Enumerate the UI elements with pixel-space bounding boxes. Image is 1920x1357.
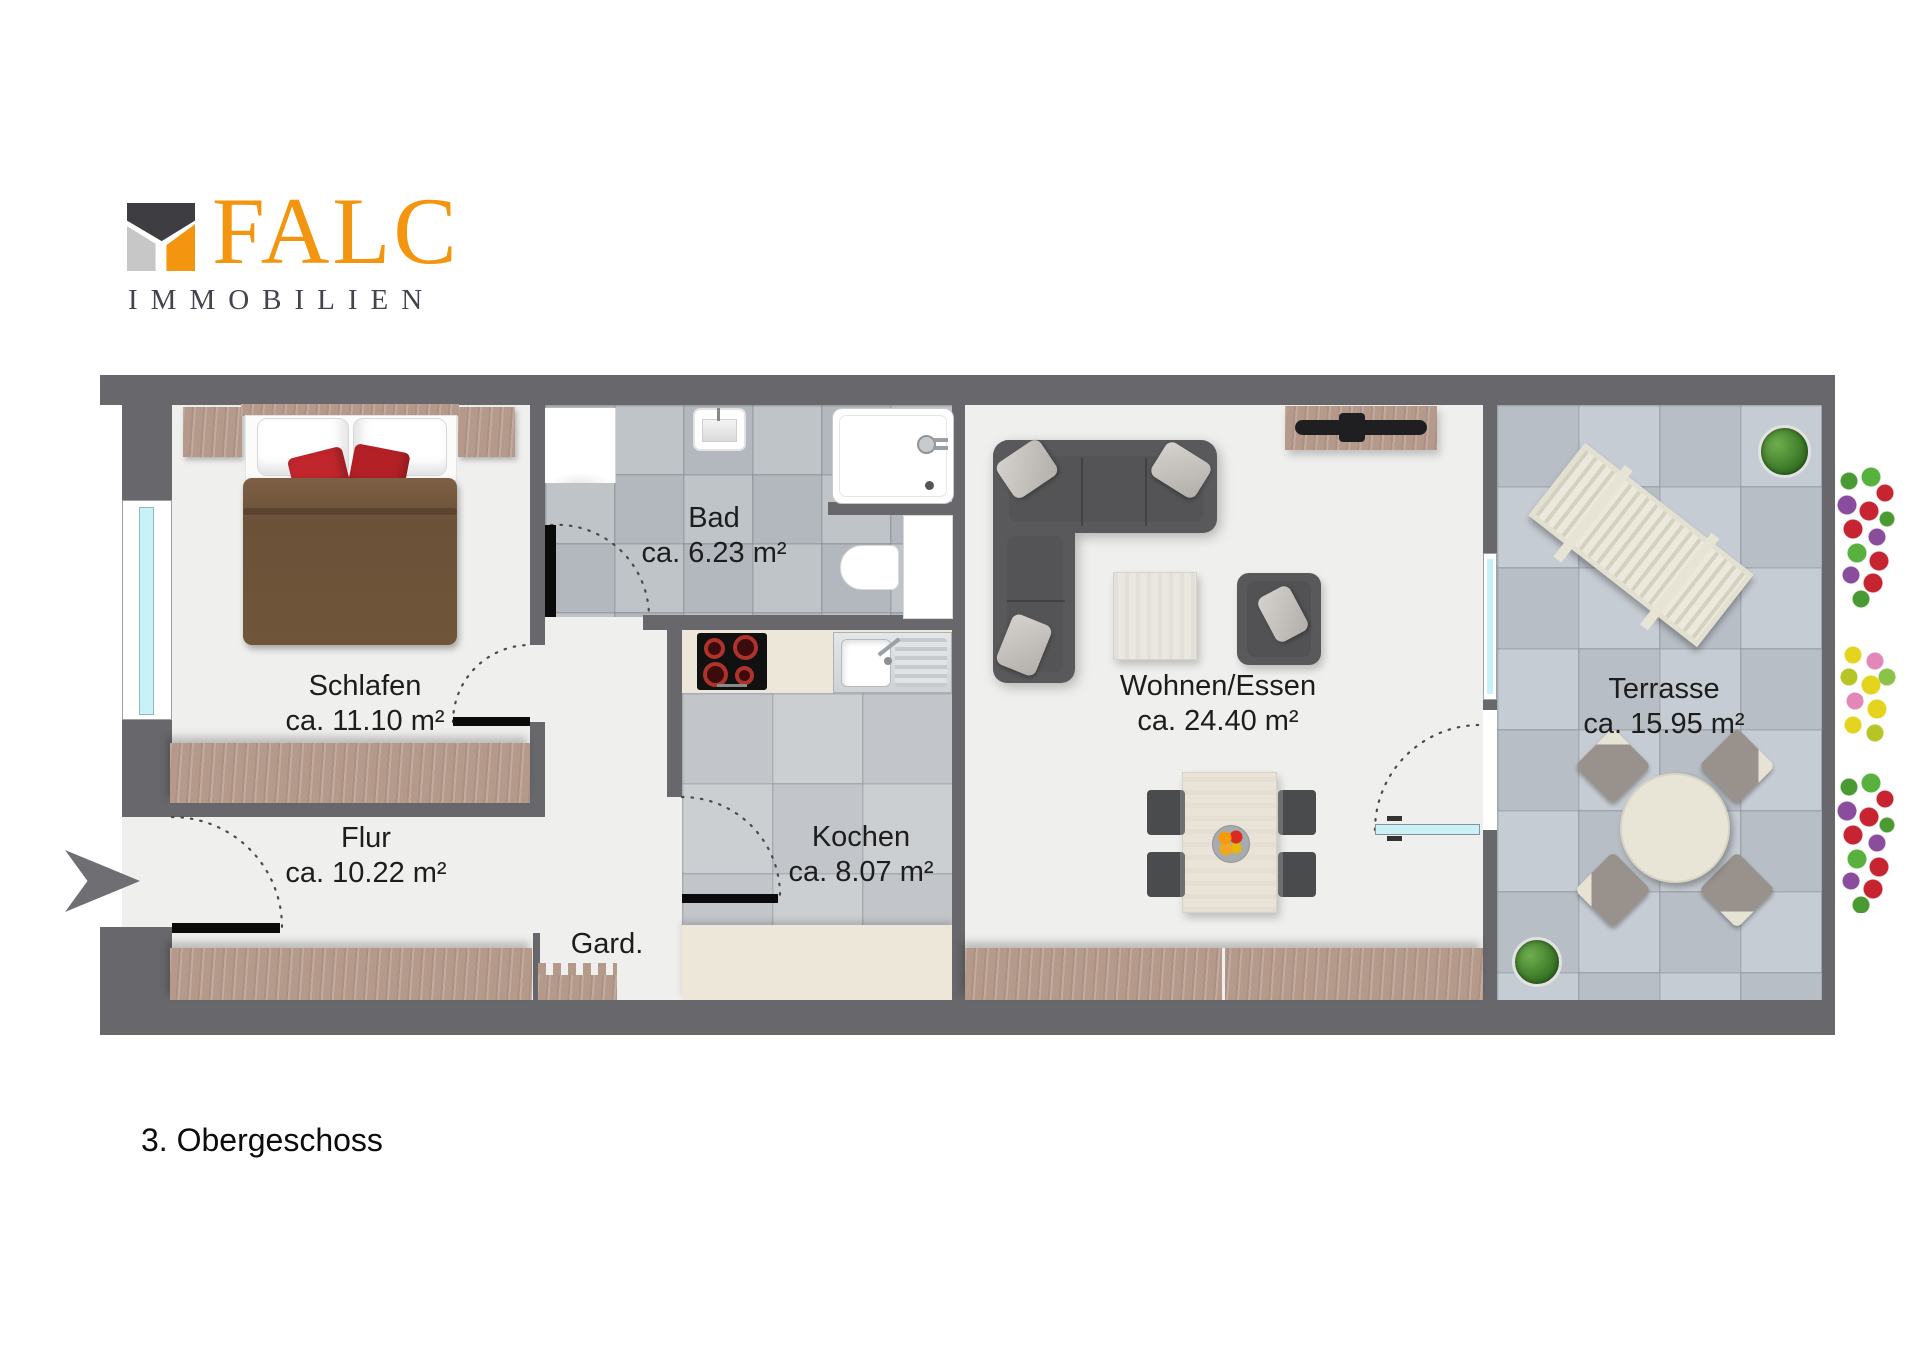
cooktop bbox=[697, 633, 767, 690]
door-kochen bbox=[682, 894, 778, 903]
bed-duvet bbox=[243, 478, 457, 645]
nightstand bbox=[458, 407, 515, 457]
logo-subtitle-text: IMMOBILIEN bbox=[128, 284, 435, 317]
burner-icon bbox=[704, 638, 725, 659]
room-name: Terrasse bbox=[1583, 672, 1744, 707]
dining-chair bbox=[1278, 852, 1316, 897]
room-area: ca. 6.23 m² bbox=[641, 536, 786, 571]
bath-shelf bbox=[903, 515, 953, 619]
shower-pipe bbox=[933, 446, 948, 450]
terrace-table bbox=[1620, 773, 1730, 883]
door-terrasse-glass bbox=[1375, 824, 1480, 835]
door-bad bbox=[545, 525, 556, 617]
room-name: Kochen bbox=[788, 820, 933, 855]
room-label-kochen: Kochen ca. 8.07 m² bbox=[788, 820, 933, 890]
room-name: Flur bbox=[285, 821, 446, 856]
washing-machine bbox=[545, 408, 616, 483]
flower-box bbox=[1833, 773, 1905, 913]
basin bbox=[702, 419, 737, 442]
flower-box bbox=[1833, 467, 1905, 612]
dining-chair bbox=[1278, 790, 1316, 835]
burner-icon bbox=[733, 635, 758, 660]
door-handle bbox=[1387, 836, 1402, 841]
flower-box bbox=[1835, 643, 1903, 748]
coat-rack bbox=[538, 963, 617, 1000]
shower bbox=[832, 408, 954, 504]
door-handle bbox=[1387, 816, 1402, 821]
drain-icon bbox=[925, 481, 934, 490]
armchair bbox=[1237, 573, 1321, 665]
cooktop-controls bbox=[717, 684, 747, 687]
sideboard-wohnen bbox=[965, 948, 1483, 1000]
room-label-terrasse: Terrasse ca. 15.95 m² bbox=[1583, 672, 1744, 742]
sink-basin bbox=[841, 639, 891, 687]
room-area: ca. 8.07 m² bbox=[788, 855, 933, 890]
dining-chair bbox=[1147, 852, 1185, 897]
seat-divider bbox=[1145, 458, 1147, 526]
shower-pipe bbox=[933, 438, 948, 442]
wardrobe-flur bbox=[170, 948, 532, 1000]
faucet-icon bbox=[717, 408, 720, 421]
double-bed bbox=[241, 404, 459, 645]
room-area: ca. 11.10 m² bbox=[285, 704, 444, 739]
falc-logo-mark-icon bbox=[127, 203, 195, 271]
sideboard-divider bbox=[1222, 948, 1225, 1000]
room-name: Gard. bbox=[571, 927, 644, 962]
fruit-bowl bbox=[1212, 825, 1250, 863]
burner-icon bbox=[735, 666, 754, 685]
nightstand bbox=[183, 407, 242, 457]
room-label-schlafen: Schlafen ca. 11.10 m² bbox=[285, 669, 444, 739]
duvet-fold bbox=[243, 508, 457, 515]
lounger-bar bbox=[1553, 465, 1632, 563]
room-area: ca. 15.95 m² bbox=[1583, 707, 1744, 742]
kitchen-sink bbox=[833, 632, 952, 693]
room-name: Bad bbox=[641, 501, 786, 536]
coffee-table bbox=[1113, 572, 1197, 660]
coat-rack-board bbox=[538, 975, 617, 1000]
lounger-bar bbox=[1640, 533, 1719, 631]
room-label-gard: Gard. bbox=[571, 927, 644, 962]
floor-plan: Schlafen ca. 11.10 m² Bad ca. 6.23 m² Fl… bbox=[100, 375, 1835, 1035]
room-name: Wohnen/Essen bbox=[1120, 669, 1316, 704]
floor-title: 3. Obergeschoss bbox=[141, 1122, 383, 1159]
door-entrance bbox=[172, 923, 280, 933]
room-label-bad: Bad ca. 6.23 m² bbox=[641, 501, 786, 571]
logo-brand-text: FALC bbox=[212, 186, 460, 276]
tv-center-box bbox=[1339, 413, 1365, 442]
seat-divider bbox=[1081, 458, 1083, 526]
room-label-wohnen-essen: Wohnen/Essen ca. 24.40 m² bbox=[1120, 669, 1316, 739]
toilet bbox=[840, 545, 899, 590]
faucet-base bbox=[884, 657, 892, 665]
potted-plant bbox=[1758, 425, 1811, 478]
potted-plant bbox=[1512, 937, 1562, 987]
dining-chair bbox=[1147, 790, 1185, 835]
tv-sideboard bbox=[1285, 406, 1437, 450]
room-area: ca. 24.40 m² bbox=[1120, 704, 1316, 739]
room-name: Schlafen bbox=[285, 669, 444, 704]
wardrobe-schlafen bbox=[170, 743, 530, 803]
seat-divider bbox=[1007, 600, 1065, 602]
sink-drainboard bbox=[895, 638, 947, 687]
washbasin bbox=[693, 408, 746, 451]
door-schlafen bbox=[453, 717, 530, 726]
room-label-flur: Flur ca. 10.22 m² bbox=[285, 821, 446, 891]
room-area: ca. 10.22 m² bbox=[285, 856, 446, 891]
